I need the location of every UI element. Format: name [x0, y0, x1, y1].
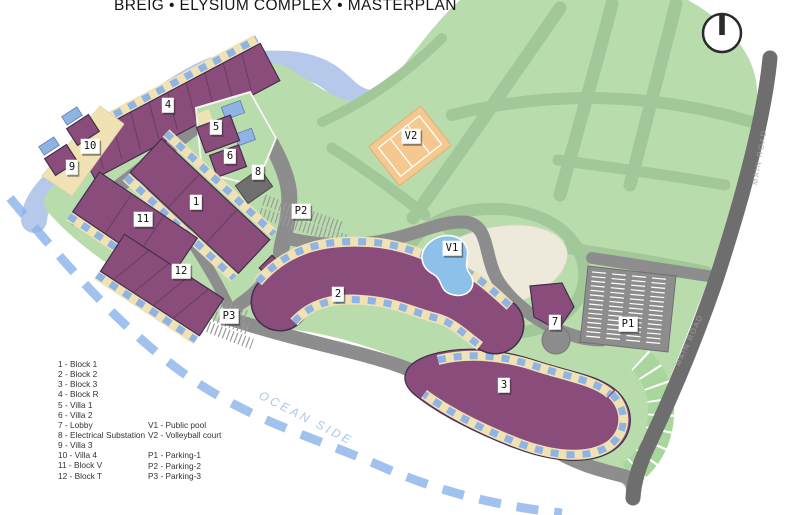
parking-p1 [580, 266, 676, 352]
legend-item: 11 - Block V [58, 460, 145, 470]
page-title: BREIG • ELYSIUM COMPLEX • MASTERPLAN [114, 0, 457, 15]
legend-item: 9 - Villa 3 [58, 440, 145, 450]
legend-item: V2 - Volleyball court [148, 430, 221, 440]
legend-item: 7 - Lobby [58, 420, 145, 430]
legend-item: 5 - Villa 1 [58, 400, 145, 410]
masterplan-canvas: MAIN ROAD MAIN ROAD [0, 0, 800, 515]
legend-item: 10 - Villa 4 [58, 450, 145, 460]
legend-item [148, 440, 221, 450]
legend-item: 3 - Block 3 [58, 379, 145, 389]
legend-item: 8 - Electrical Substation [58, 430, 145, 440]
legend-item: P2 - Parking-2 [148, 461, 221, 471]
legend-item: 4 - Block R [58, 389, 145, 399]
legend-item: P3 - Parking-3 [148, 471, 221, 481]
legend-column-1: 1 - Block 12 - Block 23 - Block 34 - Blo… [58, 359, 145, 481]
legend-item: V1 - Public pool [148, 420, 221, 430]
north-indicator-icon [703, 13, 741, 52]
legend-item: 2 - Block 2 [58, 369, 145, 379]
legend-column-2: V1 - Public poolV2 - Volleyball courtP1 … [148, 420, 221, 481]
legend-item: 6 - Villa 2 [58, 410, 145, 420]
legend-item: P1 - Parking-1 [148, 450, 221, 460]
legend-item: 1 - Block 1 [58, 359, 145, 369]
legend-item: 12 - Block T [58, 471, 145, 481]
